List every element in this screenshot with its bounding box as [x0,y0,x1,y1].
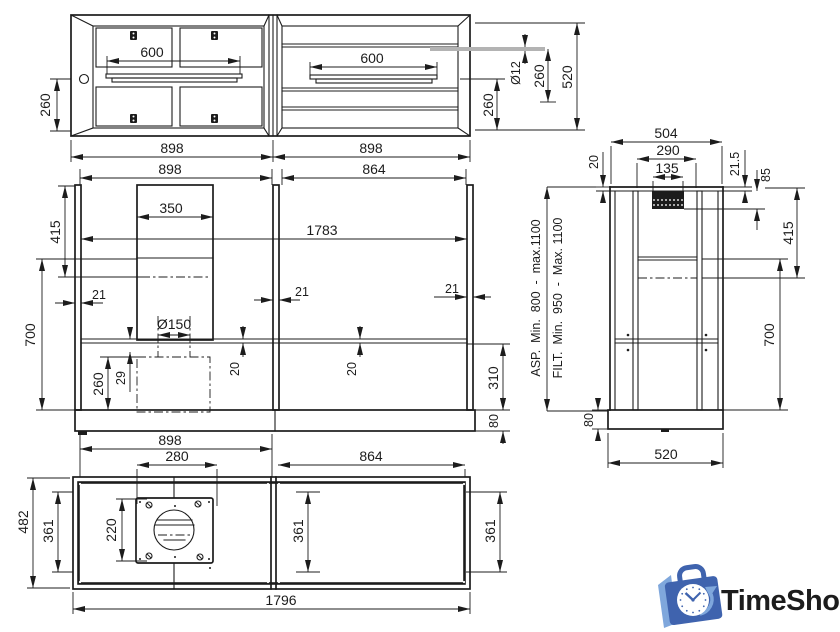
dim-bracket-85: 85 [759,168,773,182]
dim-side-520: 520 [654,446,678,462]
label-filt-height: FILT. Min. 950 - Max. 1100 [551,218,565,379]
dim-height-700: 700 [22,323,38,347]
dim-upper-260: 260 [531,64,547,88]
dim-top-898-right: 898 [359,140,383,156]
right-rod [310,75,437,79]
dim-top-20: 20 [587,155,601,169]
mounting-bracket [652,191,684,209]
filter-panel [180,87,262,126]
dim-side-base-80: 80 [582,413,596,427]
technical-drawing-page: 600 600 260 Ø12 260 520 260 898 898 [0,0,840,632]
dim-bracket-135: 135 [655,160,679,176]
side-knob [80,75,89,84]
dim-panel-21-right: 21 [445,282,459,296]
left-unit-frame [93,26,264,128]
side-view: 504 290 135 20 21.5 85 415 700 80 520 AS… [529,125,805,468]
front-view: 898 864 350 1783 415 700 21 21 21 Ø150 2… [22,161,510,477]
dim-offset-29: 29 [114,371,128,385]
dim-chimney-350: 350 [159,200,183,216]
dim-side-290: 290 [656,142,680,158]
side-base [608,410,723,429]
chimney-column [633,191,638,410]
dim-bottom-864: 864 [359,448,383,464]
dim-shelf-20-left: 20 [228,362,242,376]
dim-top-898-left: 898 [160,140,184,156]
chimney-column [697,191,702,410]
right-wall [467,185,473,410]
dim-rod-diameter: Ø12 [509,61,523,85]
dim-bottom-361-left: 361 [40,519,56,543]
dim-bottom-361-right: 361 [482,519,498,543]
dim-side-260: 260 [37,93,53,117]
motor-opening [154,510,194,550]
left-wall [75,185,81,410]
dim-chase-260: 260 [90,372,106,396]
dim-rod-600-right: 600 [360,50,384,66]
duct-chase [137,357,210,412]
dim-depth-520: 520 [559,65,575,89]
dim-holes-280: 280 [165,448,189,464]
foot [78,431,87,435]
logo-wordmark: TimeShop [721,585,840,617]
plate-screws [139,501,211,569]
dim-lower-310: 310 [485,366,501,390]
dim-panel-21-left: 21 [92,288,106,302]
left-rod [106,74,242,78]
dim-upper-415: 415 [47,220,63,244]
label-asp-height: ASP. Min. 800 - max.1100 [529,219,543,376]
middle-wall [273,185,279,410]
dim-panel-21-mid: 21 [295,285,309,299]
dim-lower-260: 260 [480,93,496,117]
dim-bottom-361-mid: 361 [290,519,306,543]
dim-front-864: 864 [362,161,386,177]
dim-base-80: 80 [487,414,501,428]
top-plan-view: 600 600 260 Ø12 260 520 260 898 898 [37,15,585,162]
dim-side-700: 700 [761,323,777,347]
hood-technical-drawing: 600 600 260 Ø12 260 520 260 898 898 [0,0,840,632]
dim-side-504: 504 [654,125,678,141]
logo: TimeShop [658,564,840,628]
dim-overall-1796: 1796 [265,592,296,608]
dim-overall-1783: 1783 [306,222,337,238]
dim-shelf-20-right: 20 [345,362,359,376]
dim-side-415: 415 [780,221,796,245]
bottom-view: 482 361 220 280 864 361 361 1796 [15,448,507,614]
dim-top-21-5: 21.5 [728,152,742,176]
extended-rod [430,47,545,51]
dim-rod-600-left: 600 [140,44,164,60]
dim-front-898: 898 [158,161,182,177]
dim-bottom-898: 898 [158,432,182,448]
logo-clock-center [691,598,694,601]
dim-bottom-482: 482 [15,510,31,534]
right-unit-frame [282,26,458,128]
dim-plate-220: 220 [103,518,119,542]
dim-duct-diameter: Ø150 [157,316,191,332]
